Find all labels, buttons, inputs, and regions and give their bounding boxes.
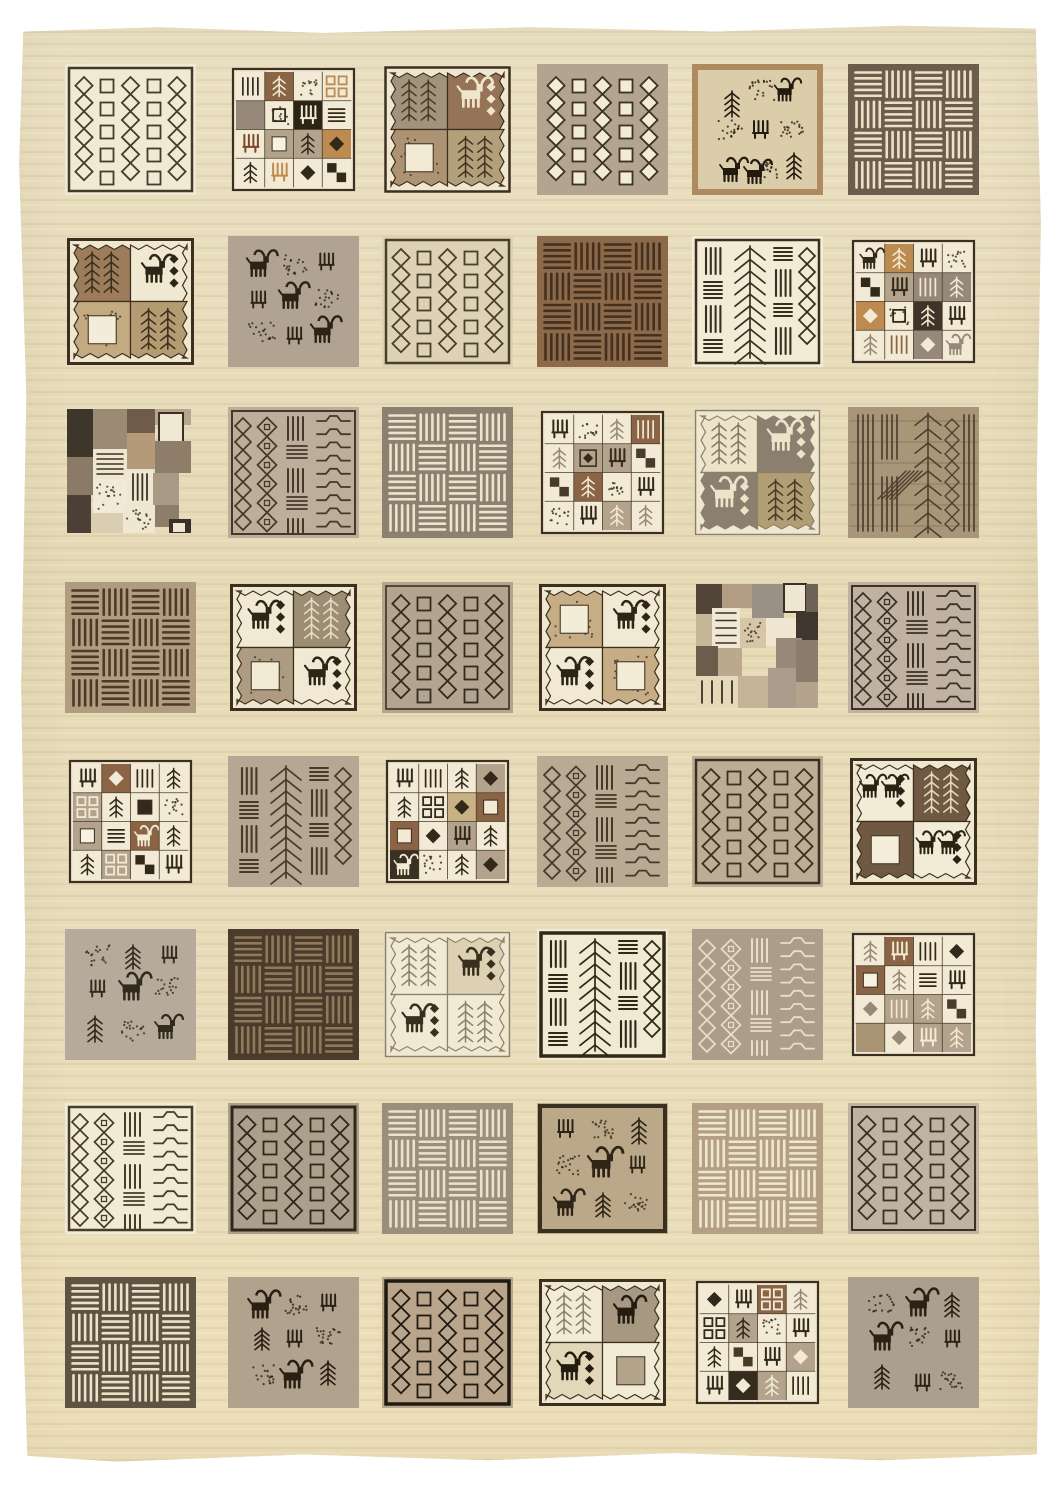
rug-panel-r5c5: [692, 756, 823, 887]
rug-panel-pattern-abstract: [65, 407, 196, 538]
rug-panel-pattern-patchwork: [848, 236, 979, 367]
rug-panel-r7c5: [692, 1103, 823, 1234]
rug-panel-r5c1: [65, 756, 196, 887]
rug-panel-pattern-patchwork: [692, 1277, 823, 1408]
rug-panel-r1c2: [228, 64, 359, 195]
rug-panel-pattern-quad: [382, 64, 513, 195]
rug-panel-r5c3: [382, 756, 513, 887]
rug-panel-r2c2: [228, 236, 359, 367]
rug-panel-r4c1: [65, 582, 196, 713]
rug-panel-pattern-dbw: [65, 1103, 196, 1234]
rug-panel-pattern-dbw: [537, 756, 668, 887]
rug-panel-r8c1: [65, 1277, 196, 1408]
rug-panel-pattern-field: [692, 64, 823, 195]
rug-panel-pattern-field: [228, 1277, 359, 1408]
rug-panel-pattern-patchwork: [537, 407, 668, 538]
rug-panel-r2c1: [65, 236, 196, 367]
rug-panel-r2c3: [382, 236, 513, 367]
rug-panel-r8c2: [228, 1277, 359, 1408]
rug-panel-r5c6: [848, 756, 979, 887]
rug-panel-pattern-abstract: [692, 582, 823, 713]
rug-panel-pattern-basket: [65, 582, 196, 713]
rug-panel-r3c6: [848, 407, 979, 538]
rug-panel-pattern-quad: [692, 407, 823, 538]
rug-panel-pattern-dbw: [848, 582, 979, 713]
rug-panel-pattern-quad: [382, 929, 513, 1060]
rug-panel-pattern-field: [65, 929, 196, 1060]
rug-panel-r4c4: [537, 582, 668, 713]
rug-panel-r8c4: [537, 1277, 668, 1408]
rug-panel-pattern-basket: [848, 64, 979, 195]
rug-panel-r7c4: [537, 1103, 668, 1234]
rug-panel-r1c6: [848, 64, 979, 195]
rug-panel-r3c1: [65, 407, 196, 538]
rug-panel-r3c5: [692, 407, 823, 538]
rug-panel-pattern-diamondSquares: [382, 236, 513, 367]
rug-panel-pattern-diamondSquares: [382, 582, 513, 713]
rug-panel-r1c5: [692, 64, 823, 195]
rug-panel-r5c2: [228, 756, 359, 887]
rug-panel-r6c6: [848, 929, 979, 1060]
rug-panel-r8c3: [382, 1277, 513, 1408]
rug-panel-pattern-diamondSquares: [692, 756, 823, 887]
rug-panel-pattern-basket: [537, 236, 668, 367]
rug-panel-pattern-dbw: [692, 929, 823, 1060]
rug-panel-r6c2: [228, 929, 359, 1060]
rug-panel-r3c4: [537, 407, 668, 538]
rug-panel-r7c3: [382, 1103, 513, 1234]
rug-panel-r2c5: [692, 236, 823, 367]
rug-panel-pattern-quad: [848, 756, 979, 887]
rug-panel-r8c5: [692, 1277, 823, 1408]
rug-panel-r4c5: [692, 582, 823, 713]
photo-background: [0, 0, 1061, 1500]
rug-panel-r1c3: [382, 64, 513, 195]
rug-panel-r4c6: [848, 582, 979, 713]
rug-panel-pattern-patchwork: [65, 756, 196, 887]
rug-panel-r3c3: [382, 407, 513, 538]
rug-panel-pattern-diamondSquares: [382, 1277, 513, 1408]
rug-panel-pattern-basket: [692, 1103, 823, 1234]
rug-panel-pattern-quad: [65, 236, 196, 367]
rug-panel-r2c6: [848, 236, 979, 367]
rug-panel-r2c4: [537, 236, 668, 367]
rug-panel-pattern-linesTree: [537, 929, 668, 1060]
rug-panel-r5c4: [537, 756, 668, 887]
rug-panel-pattern-diamondSquares: [848, 1103, 979, 1234]
rug-panel-r4c3: [382, 582, 513, 713]
rug-panel-r8c6: [848, 1277, 979, 1408]
rug-panel-r3c2: [228, 407, 359, 538]
rug-panel-pattern-dbw: [228, 407, 359, 538]
rug-panel-pattern-basket: [228, 929, 359, 1060]
rug-panel-pattern-basket: [382, 407, 513, 538]
rug-panel-r6c4: [537, 929, 668, 1060]
rug-panel-pattern-basket: [382, 1103, 513, 1234]
rug-panel-r1c1: [65, 64, 196, 195]
rug-panel-pattern-linesAbstract: [848, 407, 979, 538]
rug-panel-r6c5: [692, 929, 823, 1060]
rug-panel-pattern-linesTree: [692, 236, 823, 367]
rug-panel-r6c1: [65, 929, 196, 1060]
rug-panel-pattern-diamondSquares: [537, 64, 668, 195]
rug-photo: [14, 20, 1046, 1466]
rug-panel-r6c3: [382, 929, 513, 1060]
rug-panel-pattern-field: [848, 1277, 979, 1408]
rug-panel-pattern-field: [537, 1103, 668, 1234]
rug-panel-r7c1: [65, 1103, 196, 1234]
rug-panel-pattern-quad: [228, 582, 359, 713]
rug-panel-pattern-diamondSquares: [228, 1103, 359, 1234]
rug-panel-pattern-quad: [537, 582, 668, 713]
rug-panel-r1c4: [537, 64, 668, 195]
rug-panel-pattern-linesTree: [228, 756, 359, 887]
rug-panel-pattern-field: [228, 236, 359, 367]
rug-panel-pattern-diamondSquares: [65, 64, 196, 195]
rug-panel-r7c6: [848, 1103, 979, 1234]
rug-panel-pattern-quad: [537, 1277, 668, 1408]
rug-panel-r7c2: [228, 1103, 359, 1234]
rug-panel-pattern-patchwork: [382, 756, 513, 887]
rug-panel-pattern-patchwork: [228, 64, 359, 195]
rug-panel-pattern-basket: [65, 1277, 196, 1408]
rug-panel-pattern-patchwork: [848, 929, 979, 1060]
rug-panel-r4c2: [228, 582, 359, 713]
